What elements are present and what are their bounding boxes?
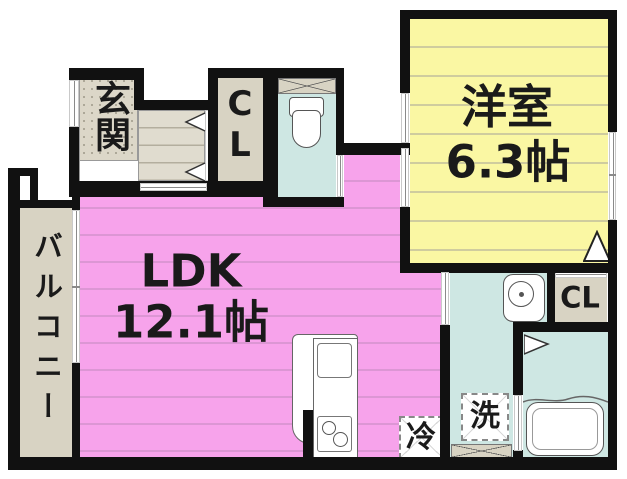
wall-segment [440,325,450,457]
entrance-step [79,161,138,181]
ldk-size: 12.1帖 [113,300,269,345]
wall-segment [8,457,617,470]
burner-icon [322,421,336,435]
kitchen-sink-icon [317,343,352,378]
folding-door-chevron-icon [184,112,206,132]
wall-segment [263,68,344,78]
western-room-window [609,132,616,220]
western-room-door [401,148,409,207]
fridge-label: 冷 [406,423,436,453]
washroom-shelf [451,444,512,458]
wall-segment [400,10,410,93]
western-room-side-window [401,93,409,143]
wall-segment [513,322,523,395]
wall-segment [18,200,80,208]
window-tick [609,174,616,176]
wall-segment [608,220,617,470]
toilet-door [337,155,343,197]
closet-lower-label: CL [560,284,600,313]
wall-segment [8,168,20,470]
window-tick [72,286,80,288]
folding-door-chevron-icon [184,162,206,182]
western-room-size: 6.3帖 [446,140,571,185]
entrance-label: 玄関 [91,80,127,152]
wall-segment [208,68,270,78]
wall-segment [69,68,143,80]
toilet-shelf [278,78,336,94]
bathtub-inner-icon [532,408,598,450]
wall-segment [208,68,218,197]
entrance-door [69,80,79,127]
washer-label: 洗 [470,402,500,432]
wall-segment [72,190,80,210]
closet-upper-label-c: C [228,87,253,121]
wall-segment [336,68,344,155]
bathroom-door [514,395,522,451]
burner-icon [333,432,348,447]
closet-upper-label-l: L [229,128,251,162]
toilet-bowl-icon [292,110,321,148]
floor-plan: 玄関 C L 洋室 6.3帖 LDK 12.1帖 バルコニー 冷 洗 CL [0,0,627,479]
vanity-drain-icon [519,292,524,297]
hatch-triangle-icon [583,230,611,263]
wall-segment [400,10,617,19]
wall-segment [400,263,617,273]
wall-segment [608,10,617,132]
wall-segment [513,322,617,332]
wall-segment [72,363,80,460]
wall-segment [263,197,344,207]
western-room-name: 洋室 [461,84,553,130]
hall-sliding-door [140,183,207,191]
wall-segment [513,450,523,460]
balcony-label: バルコニー [32,231,61,431]
ldk-name: LDK [141,249,242,294]
bath-door-swing-icon [524,334,550,356]
washroom-door [441,272,449,325]
wall-segment [134,100,213,110]
